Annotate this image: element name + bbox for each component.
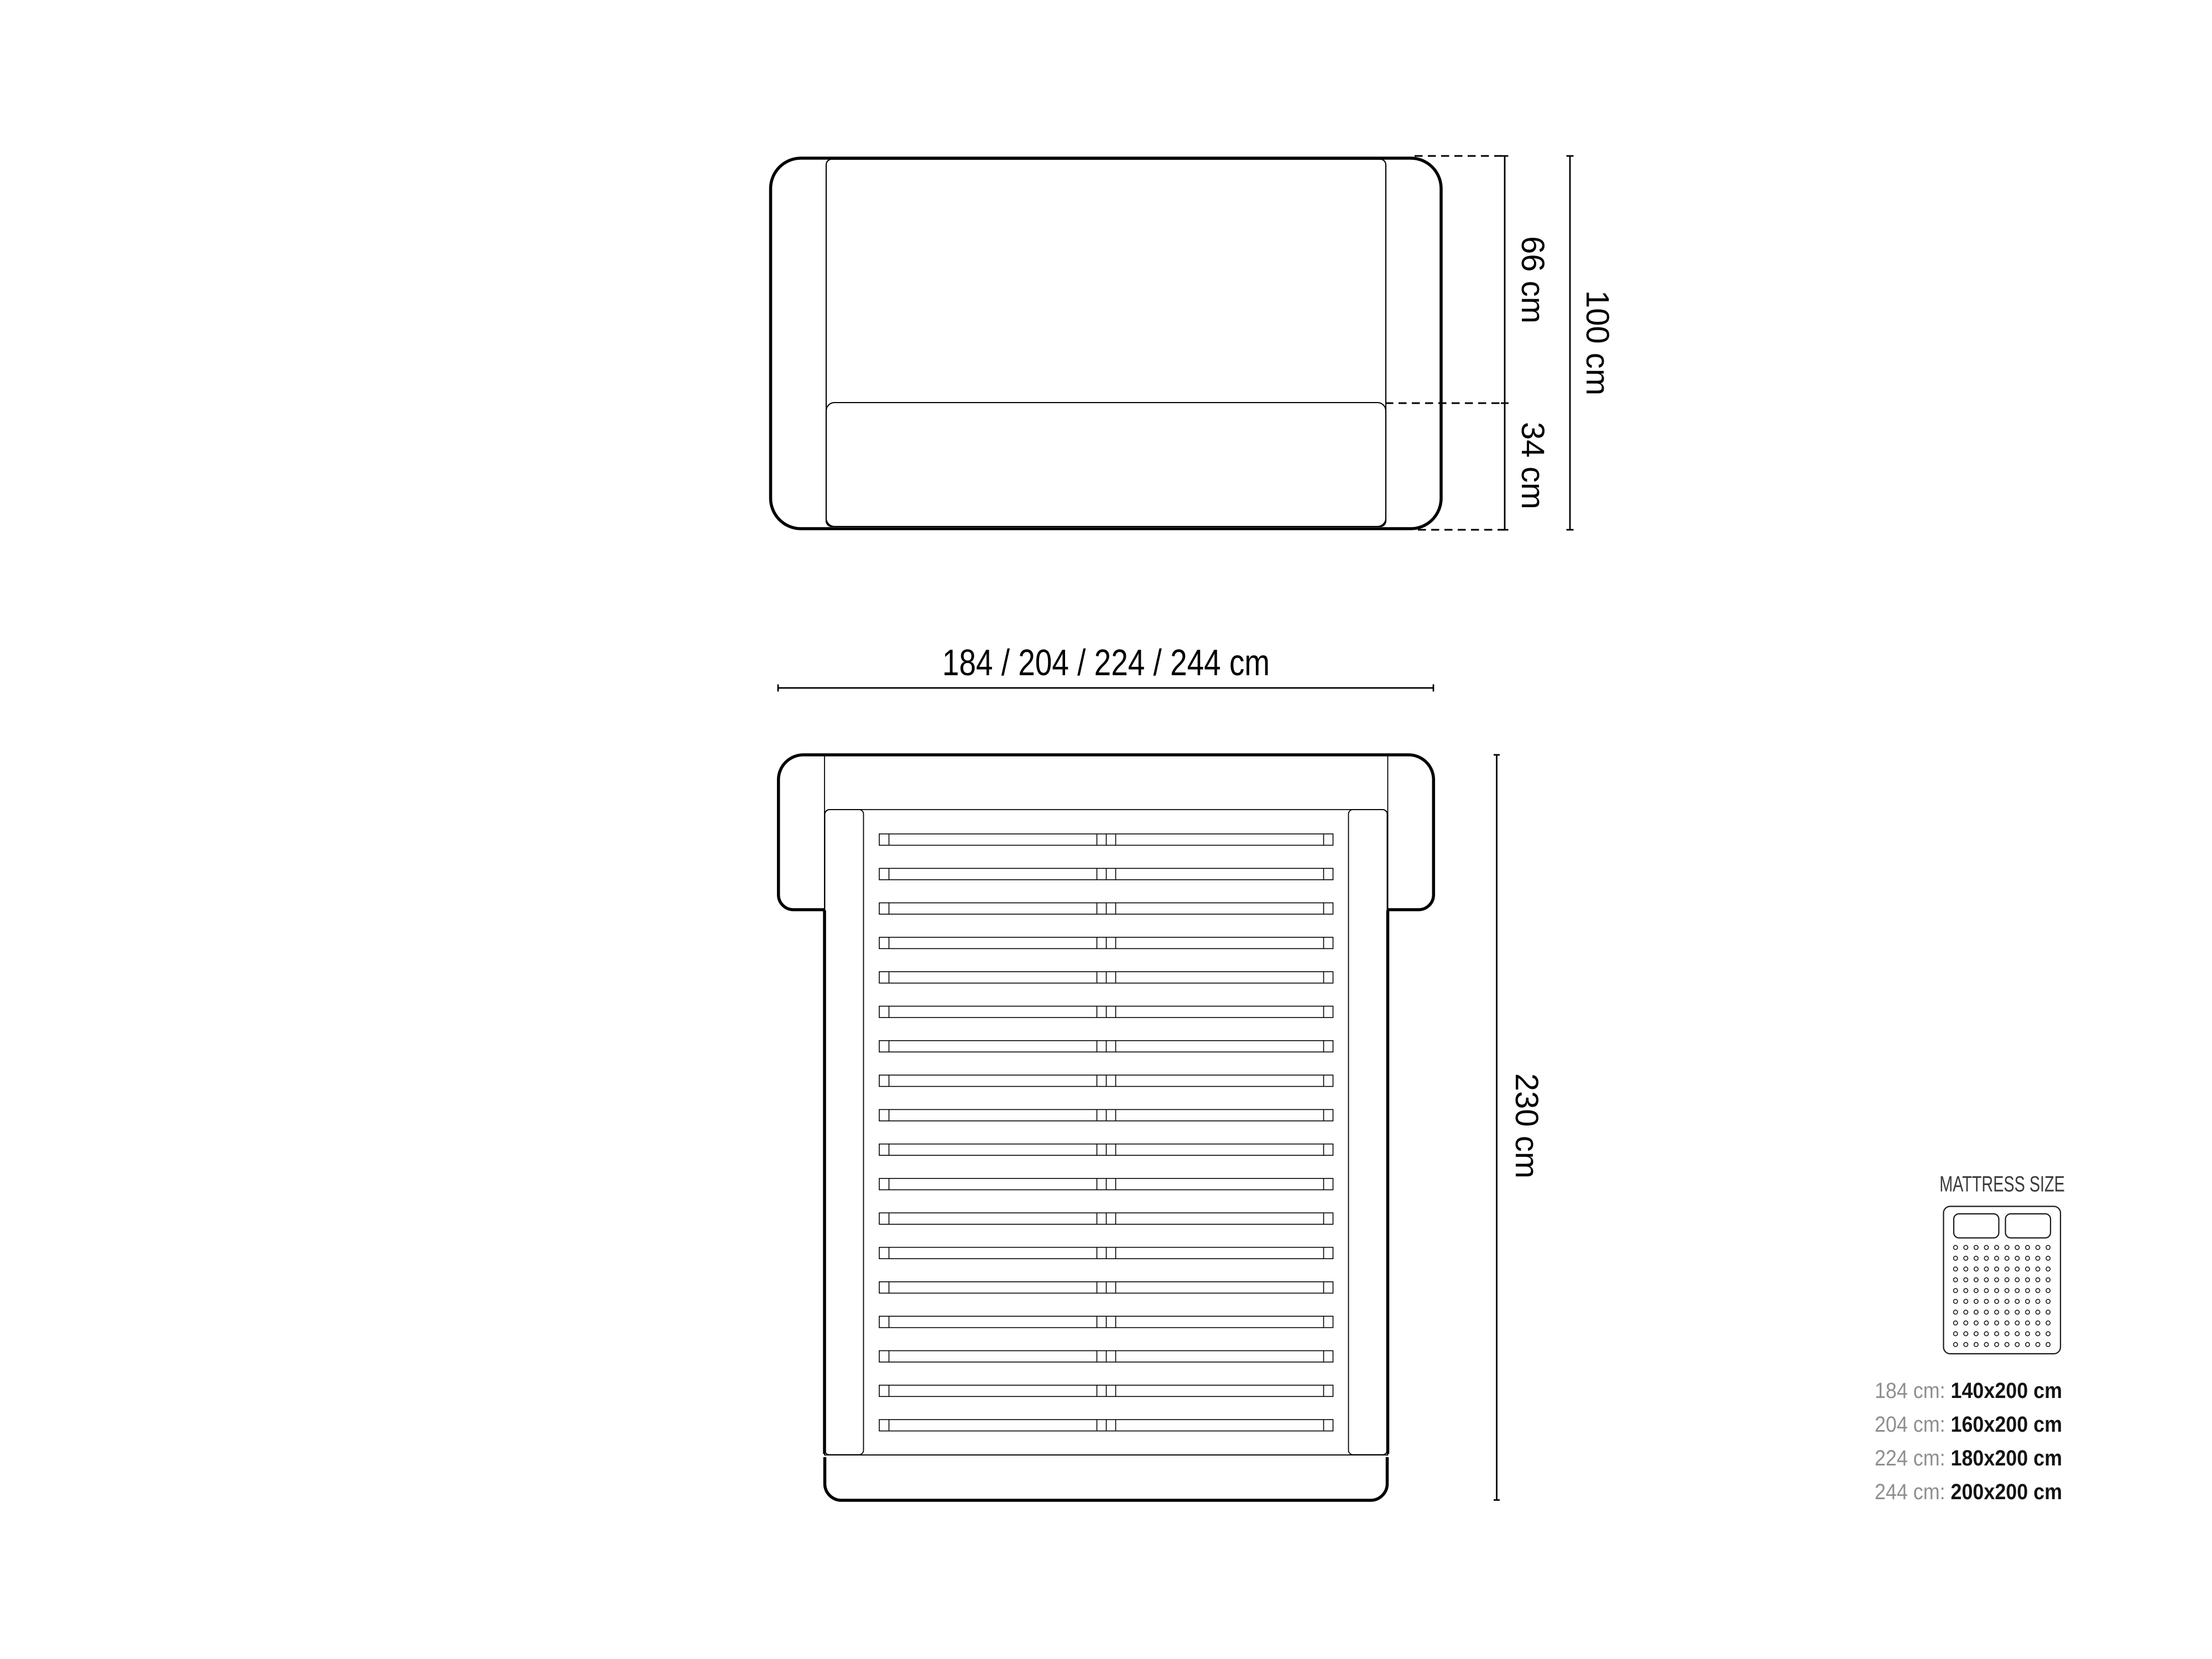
svg-text:204 cm: 160x200 cm: 204 cm: 160x200 cm: [1875, 1412, 2062, 1437]
svg-text:230 cm: 230 cm: [1509, 1073, 1545, 1178]
svg-text:MATTRESS SIZE: MATTRESS SIZE: [1939, 1172, 2065, 1197]
svg-text:244 cm: 200x200 cm: 244 cm: 200x200 cm: [1875, 1480, 2062, 1504]
svg-text:34 cm: 34 cm: [1515, 422, 1551, 509]
svg-text:66 cm: 66 cm: [1515, 236, 1551, 324]
svg-text:184 / 204 / 224 / 244 cm: 184 / 204 / 224 / 244 cm: [942, 642, 1270, 683]
svg-text:224 cm: 180x200 cm: 224 cm: 180x200 cm: [1875, 1446, 2062, 1470]
svg-text:100 cm: 100 cm: [1579, 290, 1615, 395]
svg-text:184 cm: 140x200 cm: 184 cm: 140x200 cm: [1875, 1379, 2062, 1403]
